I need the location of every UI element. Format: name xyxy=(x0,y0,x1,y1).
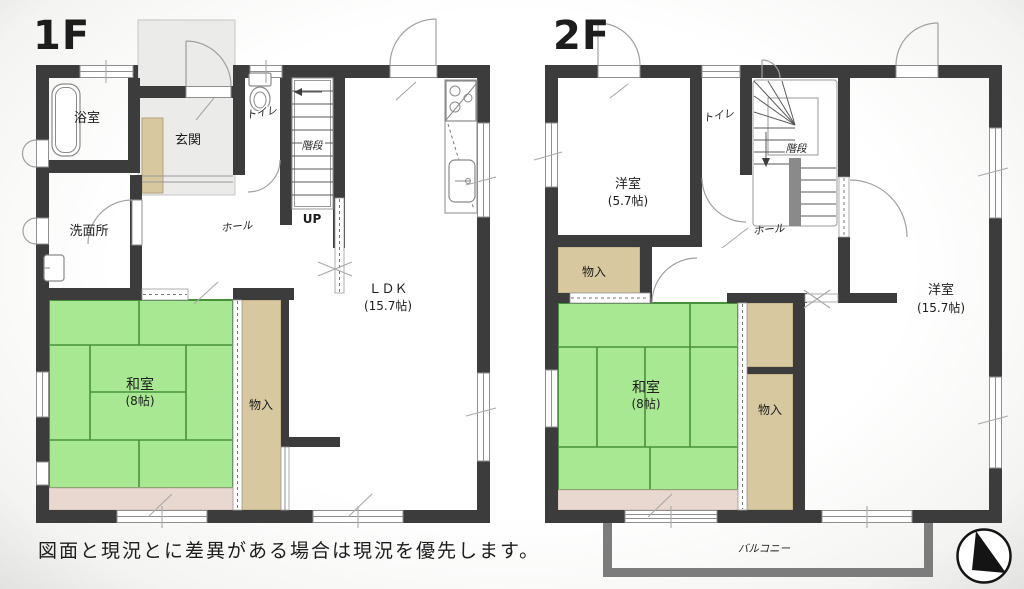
room-size-washitsu-2f: (8帖) xyxy=(632,396,661,411)
disclaimer-text: 図面と現況とに差異がある場合は現況を優先します。 xyxy=(38,540,540,562)
room-label-toilet-1f: トイレ xyxy=(245,104,279,121)
stair-direction-arrow-2f xyxy=(762,158,770,167)
room-label-washitsu-1f: 和室 xyxy=(126,376,154,393)
room-size-washitsu-1f: (8帖) xyxy=(126,393,155,408)
room-size-ldk: (15.7帖) xyxy=(364,298,412,313)
washing-machine xyxy=(44,255,64,281)
stairs-up-label: UP xyxy=(303,212,322,226)
room-label-washitsu-2f: 和室 xyxy=(632,379,660,396)
room-size-western-large: (15.7帖) xyxy=(917,300,965,315)
room-label-balcony: バルコニー xyxy=(738,543,791,555)
floor1-title: 1F xyxy=(33,13,90,59)
closet-2f-side-upper xyxy=(747,303,793,367)
room-label-ldk: ＬＤＫ xyxy=(368,282,407,297)
room-label-stairs-2f: 階段 xyxy=(786,143,808,155)
room-label-toilet-2f: トイレ xyxy=(702,107,736,124)
closet-2f-side-lower xyxy=(747,374,793,510)
room-label-hall-1f: ホール xyxy=(220,219,253,234)
room-label-stairs-1f: 階段 xyxy=(302,140,324,152)
floor-1f: 1F 浴室 玄関 トイレ 階段 UP ホール 洗面所 ＬＤＫ (15.7帖) 和… xyxy=(23,13,491,523)
room-label-western-large: 洋室 xyxy=(928,282,954,298)
room-size-western-small: (5.7帖) xyxy=(608,193,648,208)
floorplan-svg: 1F 浴室 玄関 トイレ 階段 UP ホール 洗面所 ＬＤＫ (15.7帖) 和… xyxy=(0,0,1024,589)
room-label-closet-2f-side: 物入 xyxy=(758,403,782,417)
room-label-western-small: 洋室 xyxy=(615,176,641,192)
room-label-closet-2f-upper: 物入 xyxy=(582,265,606,279)
floor-2f: 2F 洋室 (5.7帖) トイレ 階段 ホール 物入 和室 (8帖) 物入 洋室… xyxy=(545,13,1002,577)
room-label-bath: 浴室 xyxy=(74,110,100,126)
floor2-title: 2F xyxy=(553,13,610,59)
north-arrow-icon xyxy=(958,530,1011,583)
room-label-washroom: 洗面所 xyxy=(69,224,108,239)
washitsu-1f-veranda-strip xyxy=(49,488,233,510)
washitsu-2f-veranda-strip xyxy=(558,490,738,510)
room-label-closet-1f: 物入 xyxy=(249,398,273,412)
stair-direction-arrow-1f xyxy=(294,88,302,96)
floorplan-page: 1F 浴室 玄関 トイレ 階段 UP ホール 洗面所 ＬＤＫ (15.7帖) 和… xyxy=(0,0,1024,589)
room-label-hall-2f: ホール xyxy=(752,222,785,237)
kitchen-counter xyxy=(445,80,477,213)
room-label-entrance: 玄関 xyxy=(175,133,201,148)
